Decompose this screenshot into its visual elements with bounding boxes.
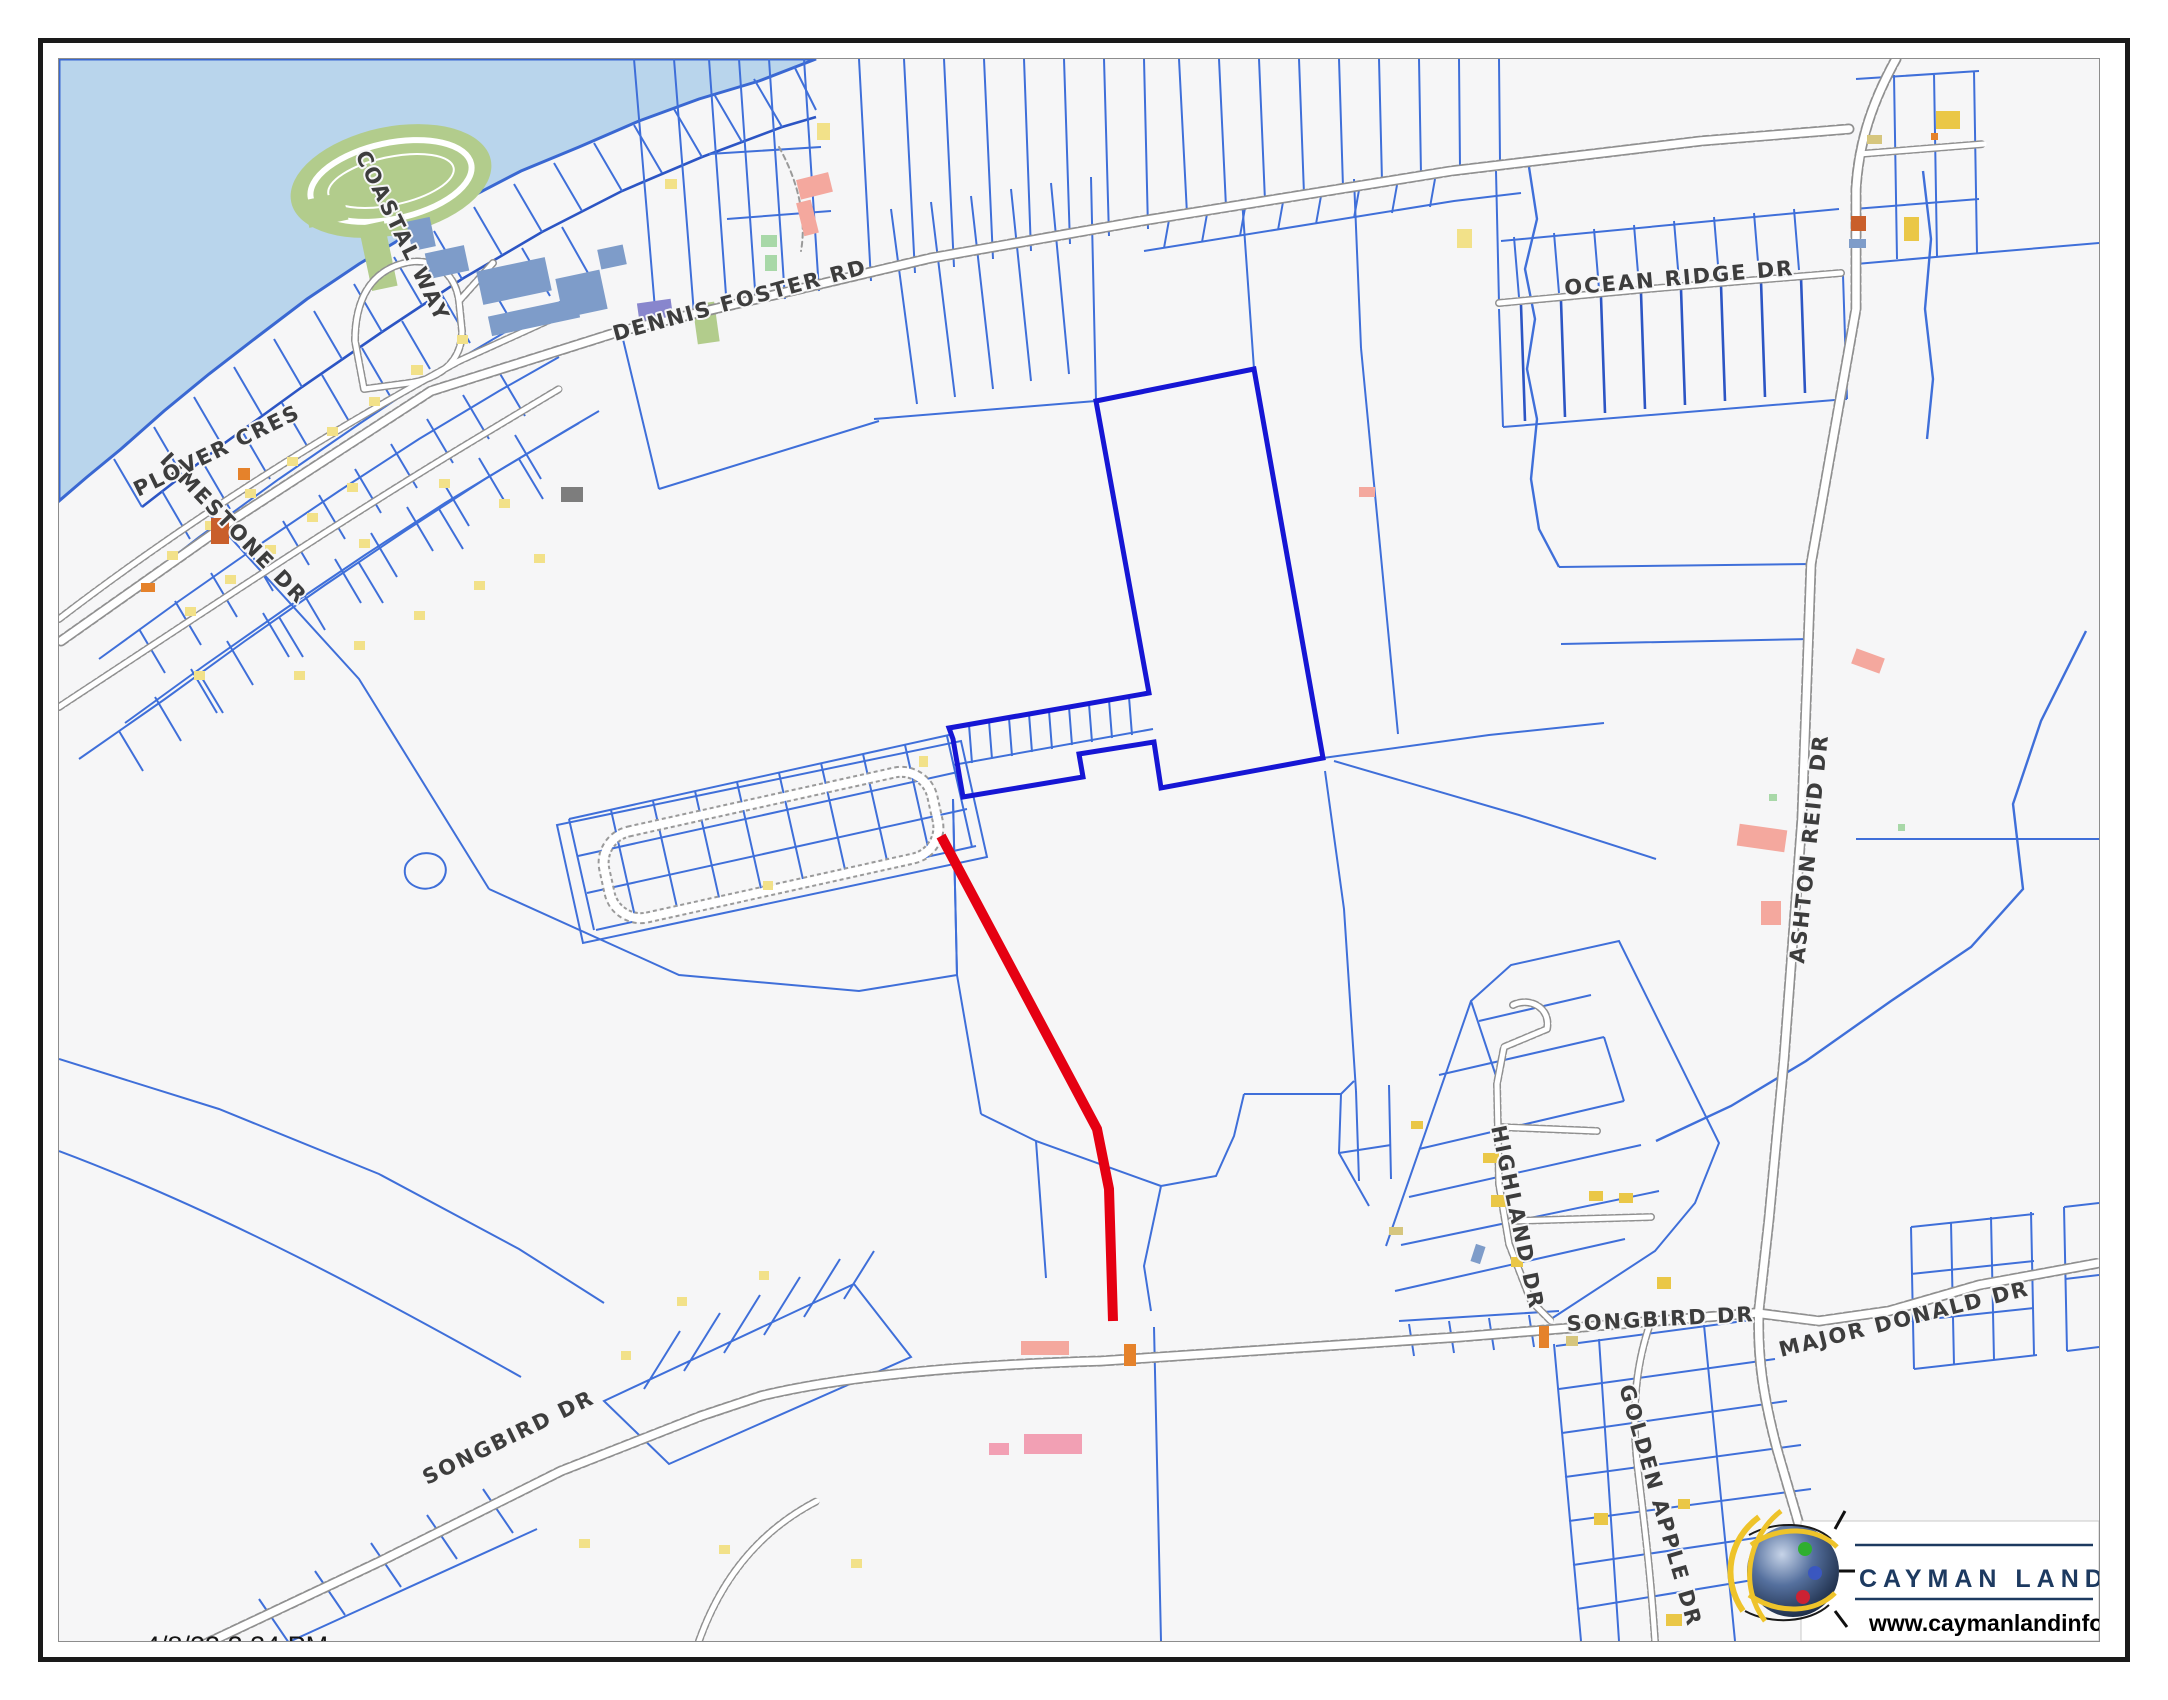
road-label-dennis-foster-rd: DENNIS FOSTER RD (610, 255, 870, 346)
road-label-songbird-dr-west: SONGBIRD DR (419, 1385, 599, 1489)
timestamp: 4/8/23 3:34 PM (145, 1631, 328, 1642)
road-label-songbird-dr-east: SONGBIRD DR (1566, 1302, 1755, 1336)
buildings (141, 111, 1960, 1626)
route-highlight[interactable] (941, 836, 1113, 1321)
cayman-land-info-logo: CAYMAN LAND INFO www.caymanlandinfo.ky (1730, 1511, 2099, 1641)
road-label-ashton-reid-dr: ASHTON REID DR (1785, 733, 1833, 965)
map-frame: LIMESTONE DR PLOVER CRES COASTAL WAY DEN… (38, 38, 2130, 1662)
road-network (59, 59, 2099, 1641)
logo-website: www.caymanlandinfo.ky (1868, 1610, 2099, 1636)
map-image: LIMESTONE DR PLOVER CRES COASTAL WAY DEN… (59, 59, 2099, 1641)
logo-title: CAYMAN LAND INFO (1859, 1565, 2099, 1593)
map-canvas[interactable]: LIMESTONE DR PLOVER CRES COASTAL WAY DEN… (58, 58, 2100, 1642)
subdivision-loop-road (597, 766, 944, 925)
